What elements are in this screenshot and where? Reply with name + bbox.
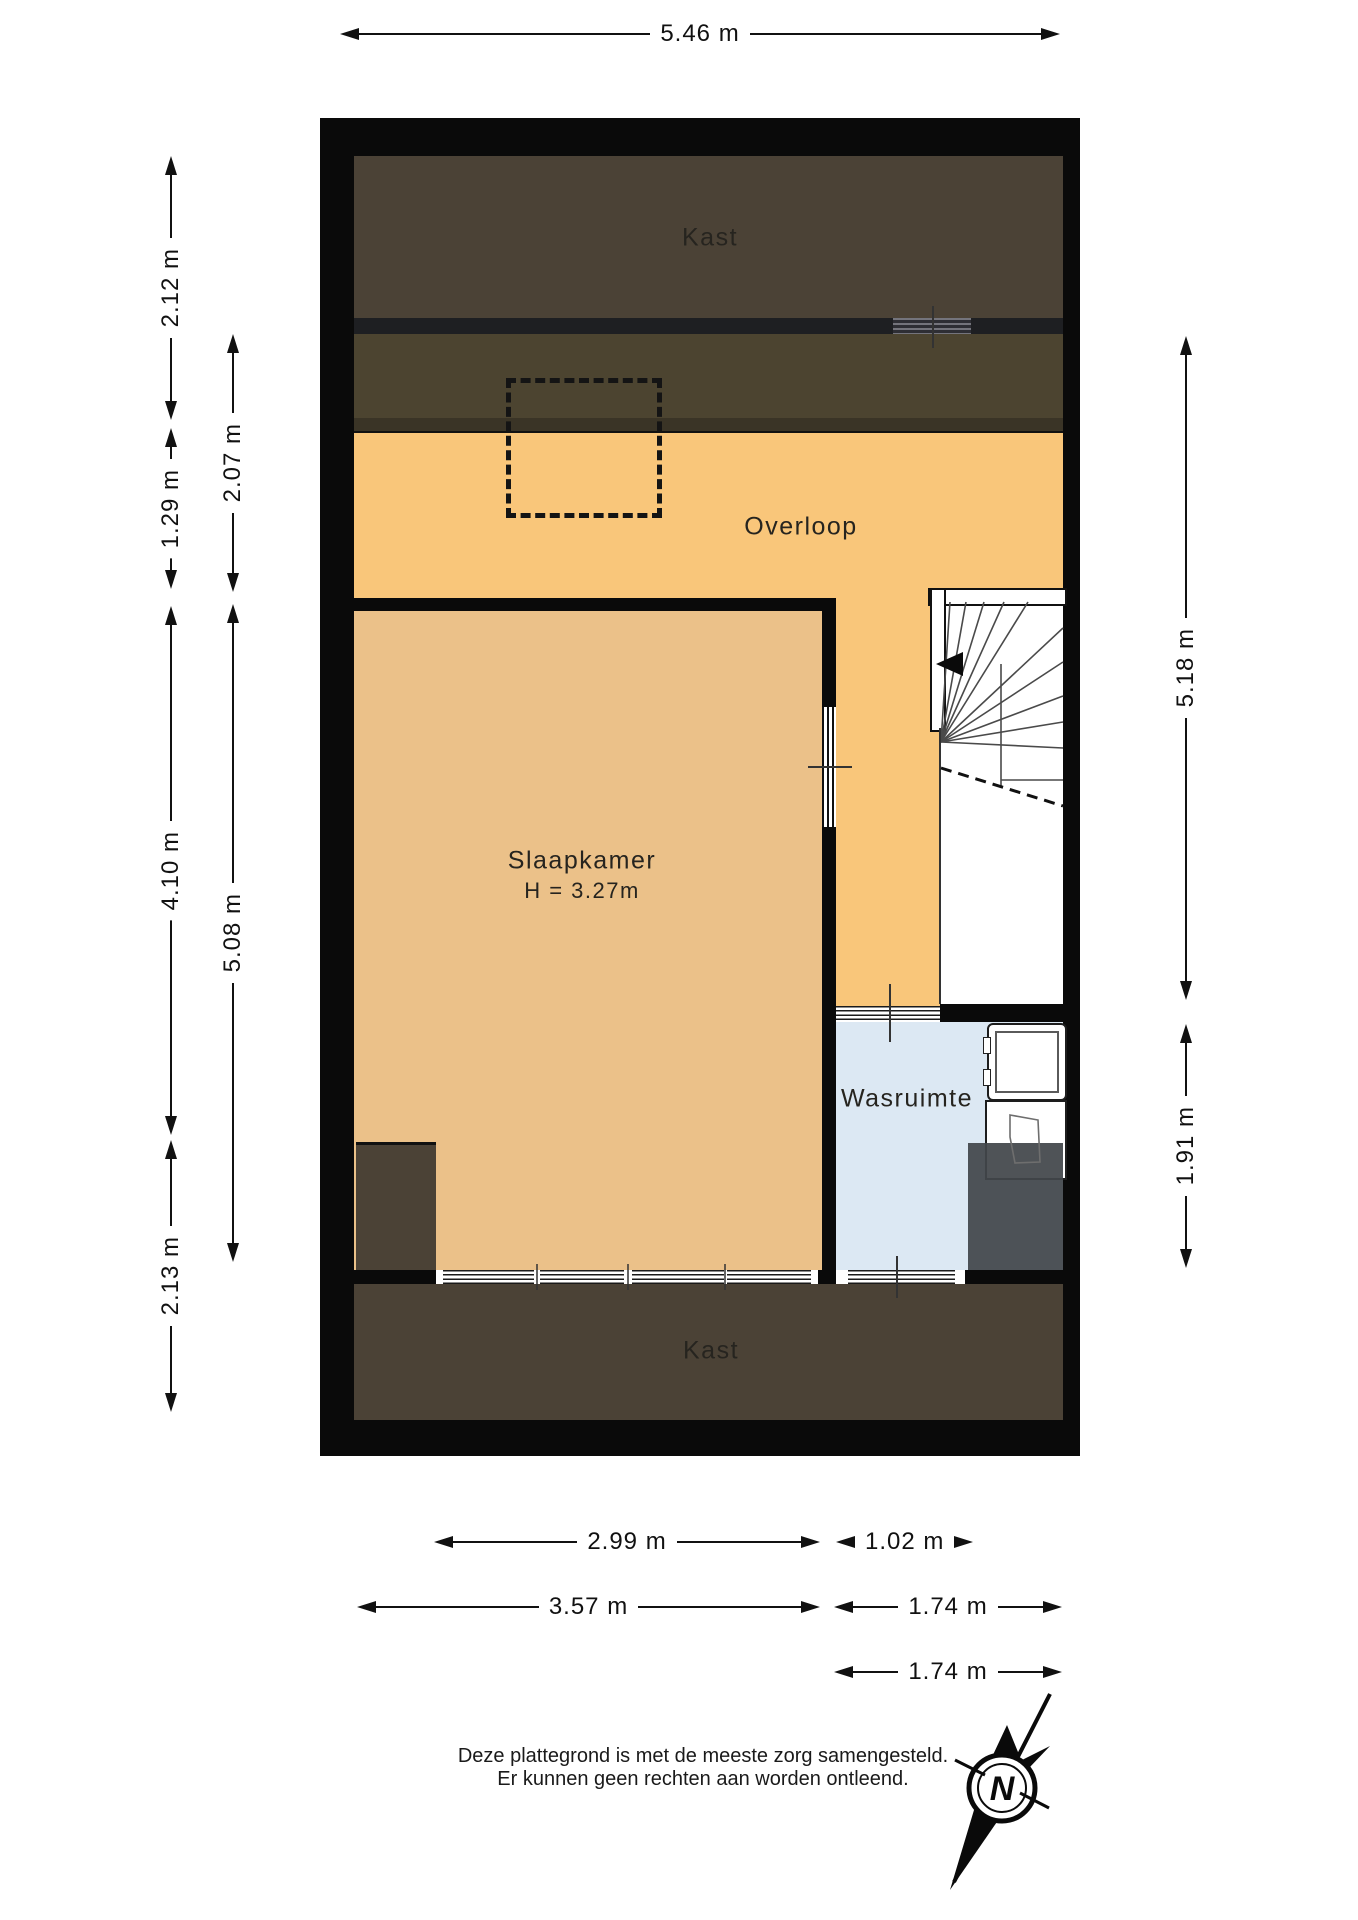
dimension-label: 5.46 m [650, 20, 749, 48]
arrowhead-right [1041, 28, 1060, 40]
compass-rose: N [950, 1694, 1050, 1890]
room-label-wasruimte: Wasruimte [841, 1085, 973, 1114]
dimension-label: 2.13 m [156, 1226, 186, 1325]
arrowhead-left [434, 1536, 453, 1548]
room-label-overloop: Overloop [744, 513, 857, 542]
arrowhead-up [227, 604, 239, 623]
arrowhead-down [1180, 981, 1192, 1000]
arrowhead-left [340, 28, 359, 40]
dimension-right-191: 1.91 m [1173, 1024, 1199, 1268]
arrowhead-right [1043, 1601, 1062, 1613]
dimension-bottom-102: 1.02 m [836, 1529, 965, 1555]
arrowhead-up [165, 428, 177, 447]
arrowhead-up [1180, 1024, 1192, 1043]
dimension-label: 2.12 m [156, 238, 186, 337]
plan-detail-overlay: N [0, 0, 1358, 1920]
dimension-left-129: 1.29 m [158, 428, 184, 589]
arrowhead-up [1180, 336, 1192, 355]
dimension-bottom-357: 3.57 m [357, 1594, 820, 1620]
arrowhead-down [227, 573, 239, 592]
arrowhead-left [834, 1666, 853, 1678]
dimension-label: 1.91 m [1171, 1096, 1201, 1195]
arrowhead-right [1043, 1666, 1062, 1678]
arrowhead-right [801, 1601, 820, 1613]
dimension-top-width: 5.46 m [340, 21, 1060, 47]
room-label-slaapkamer-height: H = 3.27m [524, 878, 640, 904]
dimension-left-212: 2.12 m [158, 156, 184, 420]
dimension-label: 1.29 m [156, 459, 186, 558]
dimension-label: 2.07 m [218, 413, 248, 512]
arrowhead-up [165, 606, 177, 625]
dimension-inner-207: 2.07 m [220, 334, 246, 592]
boiler-symbol [1010, 1115, 1040, 1163]
stairs-clearance-dashed-line [941, 768, 1063, 806]
stairs-direction-arrow [936, 652, 963, 676]
dimension-bottom-174-upper: 1.74 m [834, 1594, 1062, 1620]
disclaimer: Deze plattegrond is met de meeste zorg s… [353, 1745, 1053, 1791]
arrowhead-up [165, 1140, 177, 1159]
dimension-bottom-299: 2.99 m [434, 1529, 820, 1555]
dimension-label: 1.74 m [898, 1658, 997, 1686]
arrowhead-left [834, 1601, 853, 1613]
dimension-bottom-174-lower: 1.74 m [834, 1659, 1062, 1685]
dimension-label: 5.08 m [218, 883, 248, 982]
arrowhead-down [227, 1243, 239, 1262]
dimension-label: 1.02 m [855, 1528, 954, 1556]
arrowhead-down [165, 1393, 177, 1412]
arrowhead-down [165, 1116, 177, 1135]
dimension-right-518: 5.18 m [1173, 336, 1199, 1000]
dimension-label: 4.10 m [156, 821, 186, 920]
arrowhead-up [227, 334, 239, 353]
room-label-slaapkamer: Slaapkamer [508, 847, 656, 876]
dimension-label: 2.99 m [577, 1528, 676, 1556]
dimension-inner-508: 5.08 m [220, 604, 246, 1262]
arrowhead-down [165, 570, 177, 589]
dimension-label: 1.74 m [898, 1593, 997, 1621]
floorplan-canvas: N KastOverloopSlaapkamerH = 3.27mWasruim… [0, 0, 1358, 1920]
dimension-label: 3.57 m [539, 1593, 638, 1621]
disclaimer-line-2: Er kunnen geen rechten aan worden ontlee… [353, 1768, 1053, 1791]
arrowhead-down [165, 401, 177, 420]
room-label-kast-top: Kast [682, 224, 738, 253]
arrowhead-left [357, 1601, 376, 1613]
dimension-left-410: 4.10 m [158, 606, 184, 1135]
dimension-left-213: 2.13 m [158, 1140, 184, 1412]
arrowhead-left [836, 1536, 855, 1548]
room-label-kast-bottom: Kast [683, 1337, 739, 1366]
opening-ticks [537, 306, 933, 1298]
arrowhead-right [801, 1536, 820, 1548]
dimension-label: 5.18 m [1171, 618, 1201, 717]
disclaimer-line-1: Deze plattegrond is met de meeste zorg s… [353, 1745, 1053, 1768]
arrowhead-right [954, 1536, 973, 1548]
arrowhead-down [1180, 1249, 1192, 1268]
arrowhead-up [165, 156, 177, 175]
